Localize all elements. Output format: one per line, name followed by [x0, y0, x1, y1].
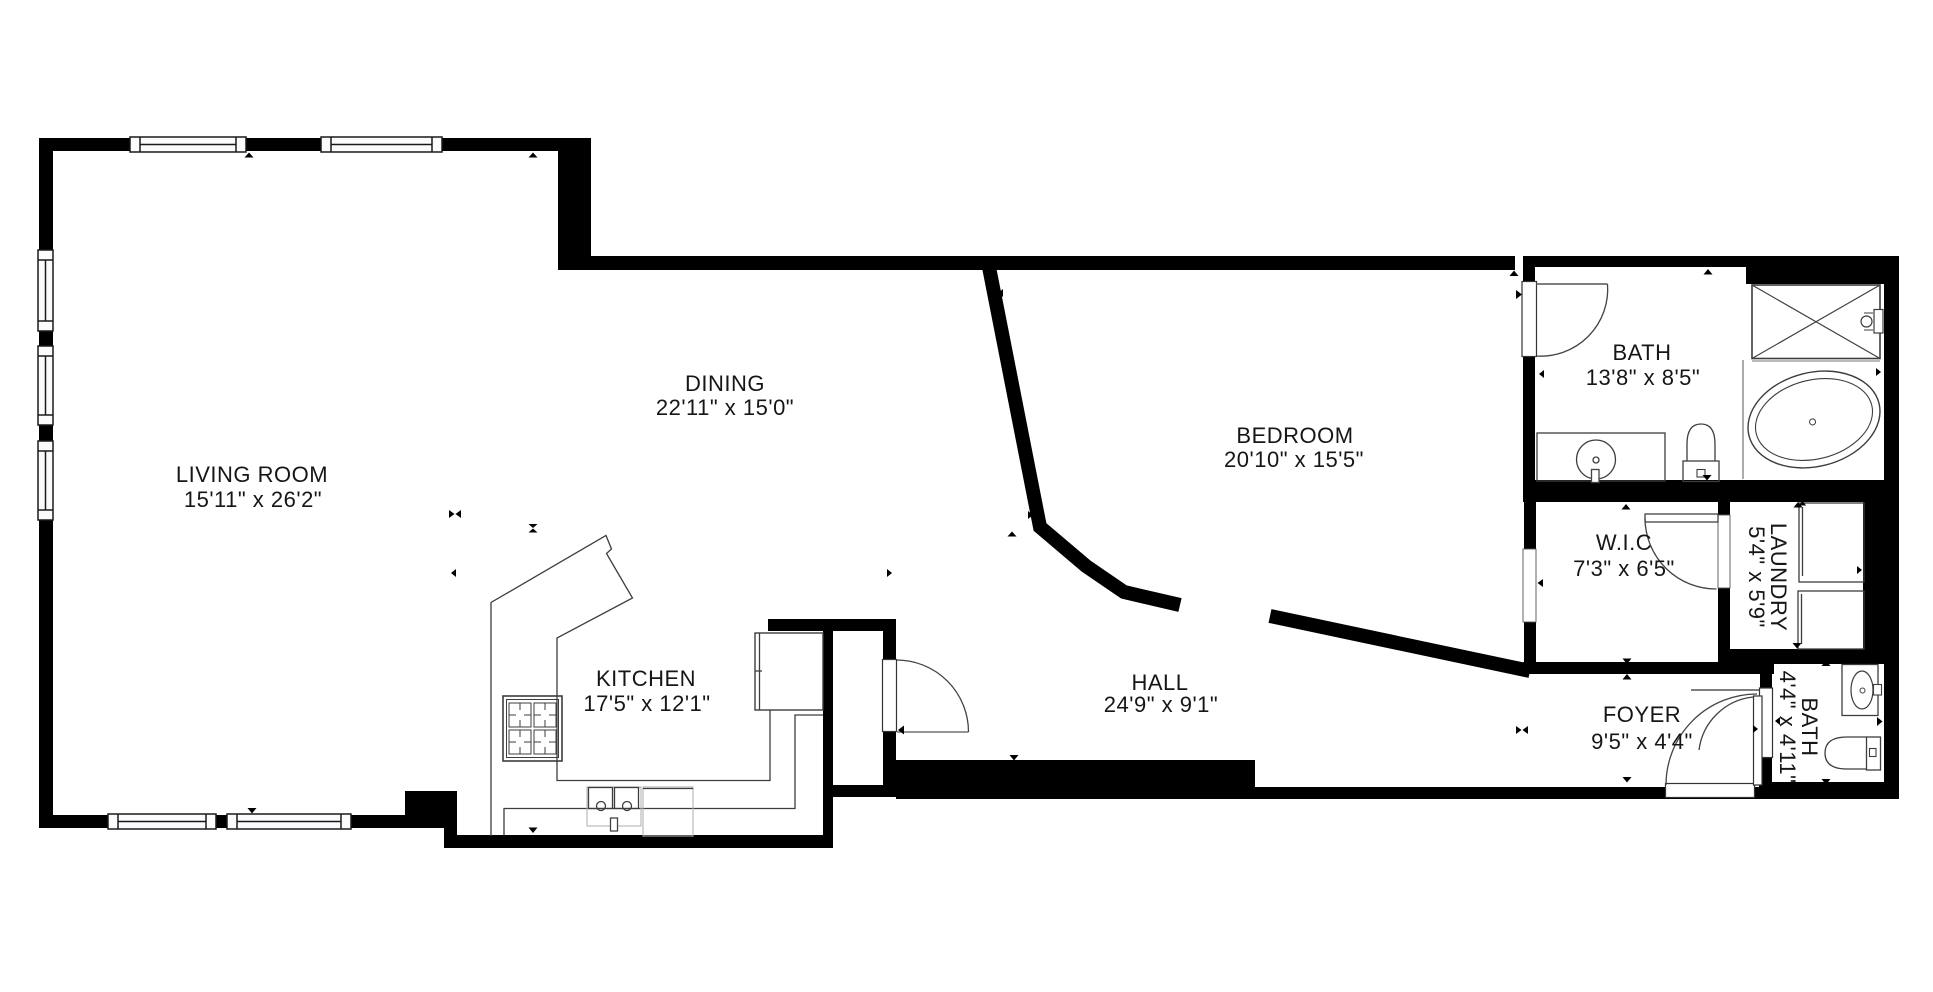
svg-text:LIVING ROOM: LIVING ROOM [176, 462, 328, 487]
svg-text:24'9" x 9'1": 24'9" x 9'1" [1104, 692, 1218, 717]
svg-text:BATH: BATH [1612, 340, 1671, 365]
svg-text:22'11" x 15'0": 22'11" x 15'0" [656, 395, 794, 420]
svg-text:KITCHEN: KITCHEN [596, 666, 696, 691]
svg-text:FOYER: FOYER [1603, 702, 1681, 727]
svg-text:9'5" x 4'4": 9'5" x 4'4" [1591, 729, 1693, 754]
svg-text:13'8" x 8'5": 13'8" x 8'5" [1586, 365, 1700, 390]
svg-text:7'3" x 6'5": 7'3" x 6'5" [1573, 556, 1675, 581]
svg-text:15'11" x 26'2": 15'11" x 26'2" [184, 487, 322, 512]
svg-text:DINING: DINING [685, 371, 765, 396]
svg-text:LAUNDRY5'4" x 5'9": LAUNDRY5'4" x 5'9" [1744, 523, 1791, 631]
svg-text:17'5" x 12'1": 17'5" x 12'1" [583, 691, 710, 716]
svg-text:20'10" x 15'5": 20'10" x 15'5" [1224, 447, 1364, 472]
svg-text:BEDROOM: BEDROOM [1236, 423, 1353, 448]
svg-text:W.I.C: W.I.C [1596, 530, 1652, 555]
